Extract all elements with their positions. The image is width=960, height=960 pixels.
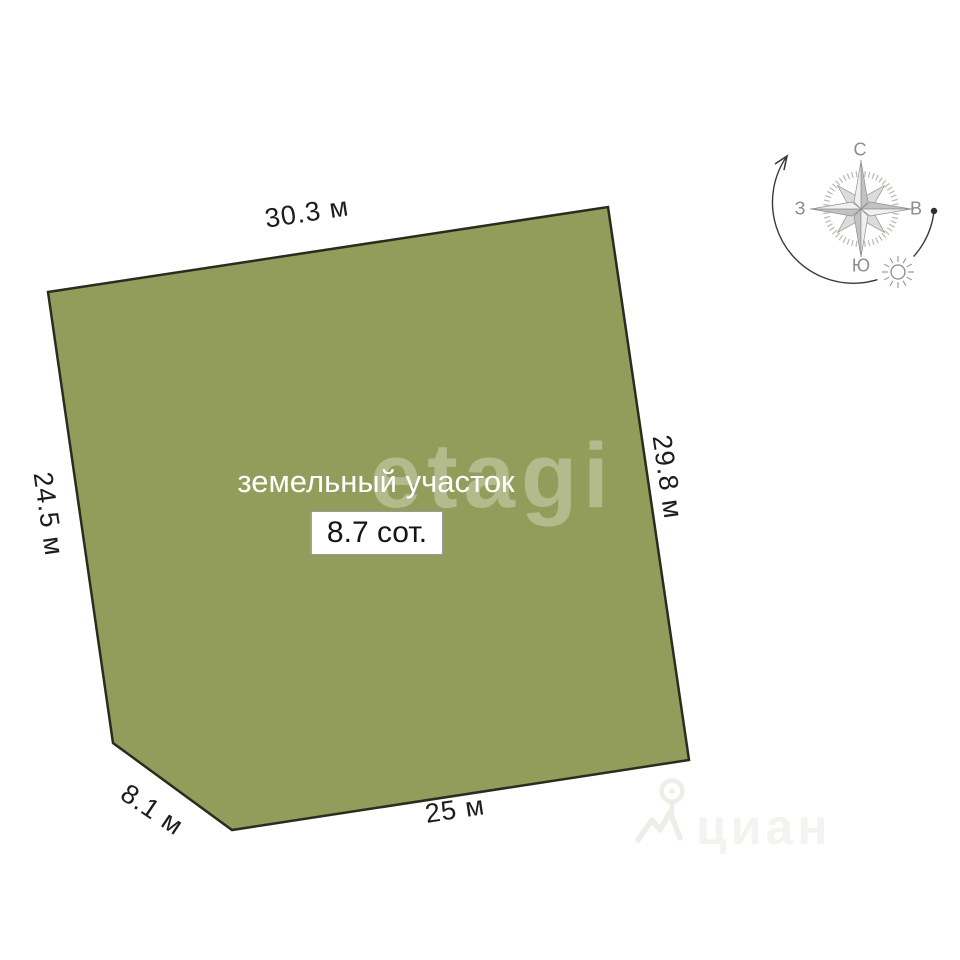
compass-label-west: З: [795, 199, 806, 220]
arrowhead-icon: [775, 156, 787, 170]
cian-watermark: циан: [696, 798, 831, 856]
plot-area-badge: 8.7 сот.: [311, 511, 443, 555]
compass-cardinal-points: [811, 161, 911, 257]
compass-label-south: Ю: [852, 256, 870, 277]
compass-label-east: В: [910, 199, 922, 220]
plot-title-label: земельный участок: [237, 464, 514, 500]
sun-icon: [876, 250, 920, 294]
compass-rose-icon: [810, 160, 914, 257]
cian-pin-logo-icon: [638, 781, 683, 841]
land-plot-diagram: etagi циан земельный участок 8.7 сот. 30…: [0, 0, 960, 960]
compass-label-north: С: [854, 140, 867, 161]
arc-end-dot: [931, 208, 937, 214]
